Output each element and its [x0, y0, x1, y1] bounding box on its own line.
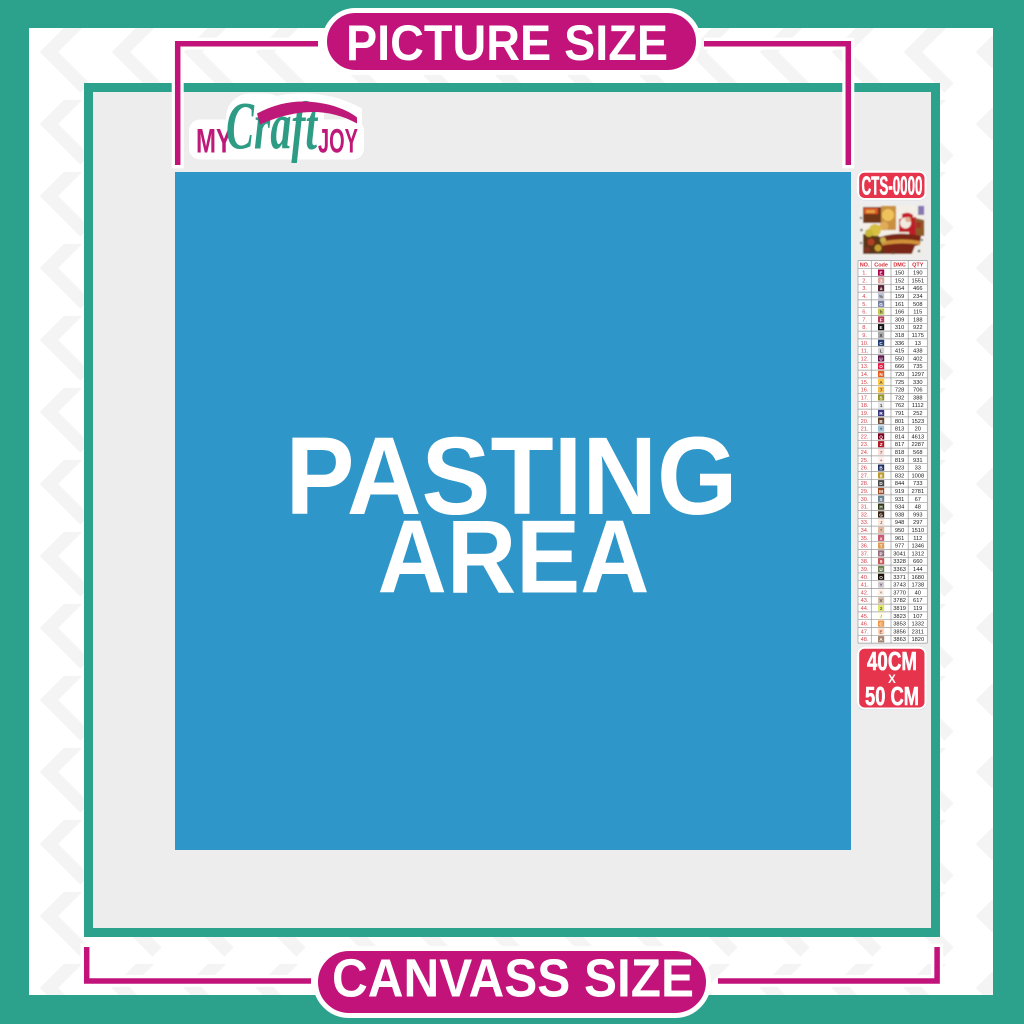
svg-text:PICTURE SIZE: PICTURE SIZE: [346, 15, 668, 71]
svg-text:AREA: AREA: [378, 500, 650, 616]
svg-text:CANVASS SIZE: CANVASS SIZE: [332, 950, 694, 1009]
